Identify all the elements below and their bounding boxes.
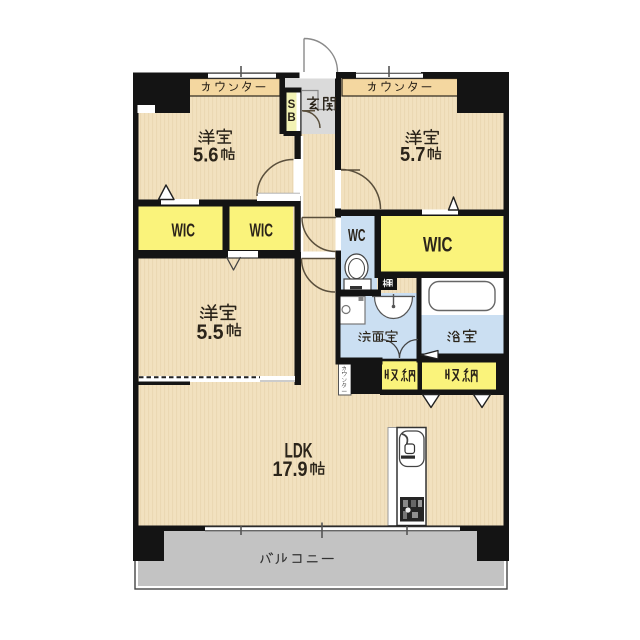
svg-text:WIC: WIC [423,233,453,257]
svg-text:WIC: WIC [250,221,274,241]
svg-text:5.6: 5.6 [193,145,219,167]
svg-text:WIC: WIC [172,221,196,241]
svg-text:WC: WC [348,225,366,245]
svg-text:B: B [287,112,295,124]
svg-text:17.9: 17.9 [273,458,308,481]
svg-text:5.5: 5.5 [197,321,224,344]
svg-text:S: S [288,99,296,111]
svg-text:5.7: 5.7 [400,144,426,166]
